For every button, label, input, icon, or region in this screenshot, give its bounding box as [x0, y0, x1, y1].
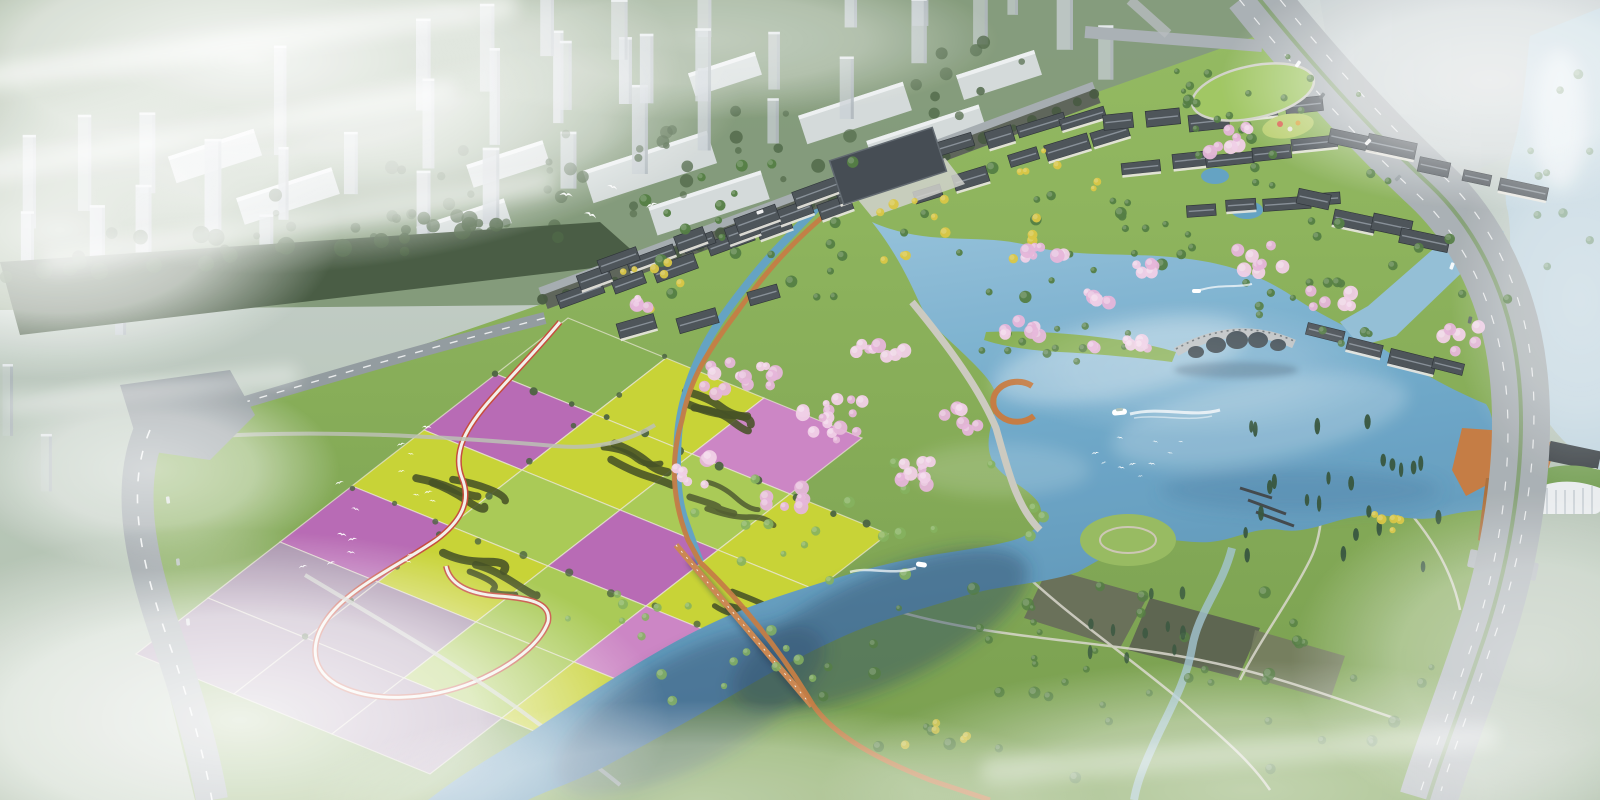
fog-layer	[0, 0, 1600, 800]
global-haze-veil	[0, 0, 1600, 800]
scene-canvas	[0, 0, 1600, 800]
aerial-rendering	[0, 0, 1600, 800]
